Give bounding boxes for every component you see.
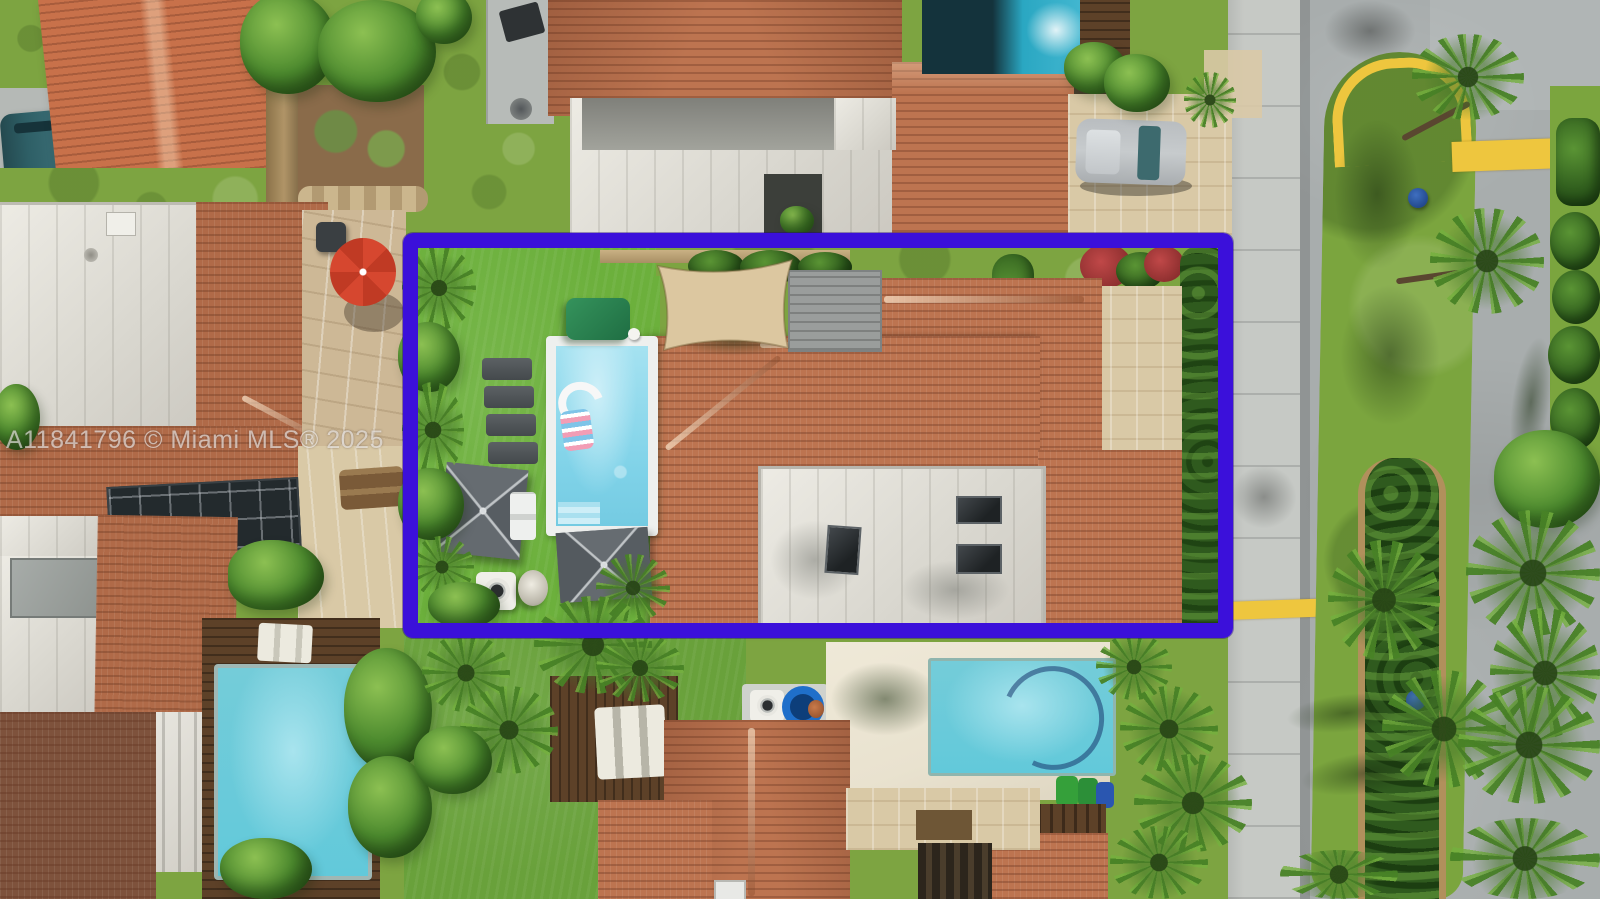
palm-bottom-3 [414, 726, 492, 794]
mulch-garden [298, 85, 424, 201]
brown-lounge-chairs [339, 466, 406, 510]
courtyard-plant [780, 206, 814, 235]
bottom-house-left-wing [598, 800, 712, 899]
walkway-drain [510, 98, 532, 120]
palm-corner-bottom-2 [1280, 850, 1398, 899]
median-palm-1 [1412, 34, 1524, 120]
white-parapet [834, 98, 896, 150]
right-wing-roof-top-center [892, 62, 1074, 235]
bottom-courtyard-opening [916, 810, 972, 840]
right-bush-2 [1552, 270, 1600, 324]
roof-vent [84, 248, 98, 262]
tile-roof-bottom-left [0, 712, 156, 899]
rooftop-ac-box [106, 212, 136, 236]
palm-bottom-4 [596, 634, 684, 702]
roof-gray-panel [10, 558, 102, 618]
right-bush-1 [1550, 212, 1600, 270]
palm-corner-bottom-1 [1450, 818, 1600, 899]
white-lounge-chairs-left [257, 623, 313, 664]
suv-windshield [1137, 126, 1161, 181]
red-patio-umbrella [330, 238, 396, 306]
suv-roof-box [1085, 129, 1121, 174]
median-palm-2 [1430, 208, 1544, 314]
terracotta-pot [808, 700, 824, 718]
sidewalk-stain [1232, 466, 1296, 528]
tree-mid-left [228, 540, 324, 610]
median-palm-shadow-1 [1334, 118, 1420, 270]
bottom-skylight [714, 880, 746, 899]
sidewalk [1228, 0, 1308, 899]
median-palm-3 [1328, 540, 1440, 660]
palm-strip-right-4 [1110, 826, 1208, 899]
bottom-roof-ridge [748, 728, 755, 896]
pool-pump-fan [757, 695, 778, 716]
aerial-photo: A11841796 © Miami MLS® 2025 [0, 0, 1600, 899]
blue-street-sign [1408, 188, 1428, 208]
palm-right-big-3 [1458, 686, 1600, 804]
tree-bottom-left-3 [220, 838, 312, 899]
right-parkway-hedge [1556, 118, 1600, 206]
bottom-dark-doorway [918, 843, 992, 899]
tree-top-right-2 [1104, 54, 1170, 112]
palm-parkway-top [1184, 72, 1236, 128]
property-highlight-box [403, 233, 1233, 638]
green-trash-bin-1 [1056, 776, 1078, 806]
median-palm-shadow-2 [1340, 284, 1440, 426]
flat-roof-dark-band [582, 98, 838, 150]
mls-watermark-text: A11841796 © Miami MLS® 2025 [6, 426, 384, 454]
yellow-crosswalk-stripe [1452, 138, 1565, 172]
mls-watermark: A11841796 © Miami MLS® 2025 [6, 426, 384, 455]
white-loungers-bottom [594, 704, 668, 780]
green-trash-bin-2 [1078, 778, 1098, 806]
